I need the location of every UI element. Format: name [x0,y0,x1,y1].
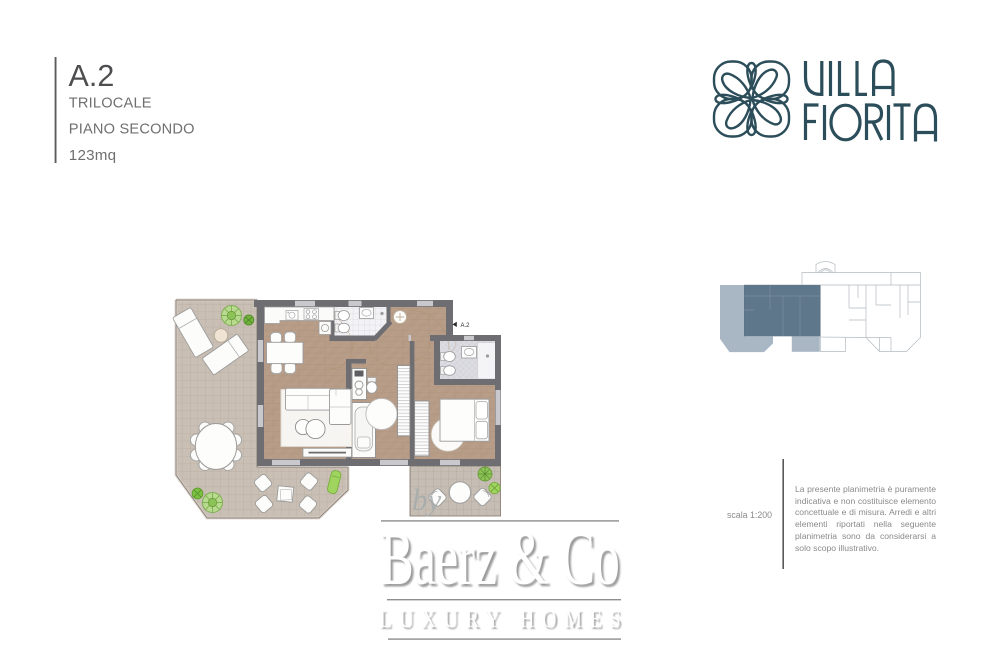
svg-text:TRILOCALE: TRILOCALE [69,96,152,112]
svg-text:PIANO SECONDO: PIANO SECONDO [69,122,195,138]
svg-text:A.2: A.2 [69,59,115,93]
svg-text:123mq: 123mq [69,147,116,164]
svg-text:by: by [412,482,442,517]
svg-text:A.2: A.2 [461,323,471,329]
svg-text:scala 1:200: scala 1:200 [727,510,772,520]
svg-text:Baerz & Co: Baerz & Co [380,517,620,601]
svg-text:LUXURY HOMES: LUXURY HOMES [379,605,628,633]
